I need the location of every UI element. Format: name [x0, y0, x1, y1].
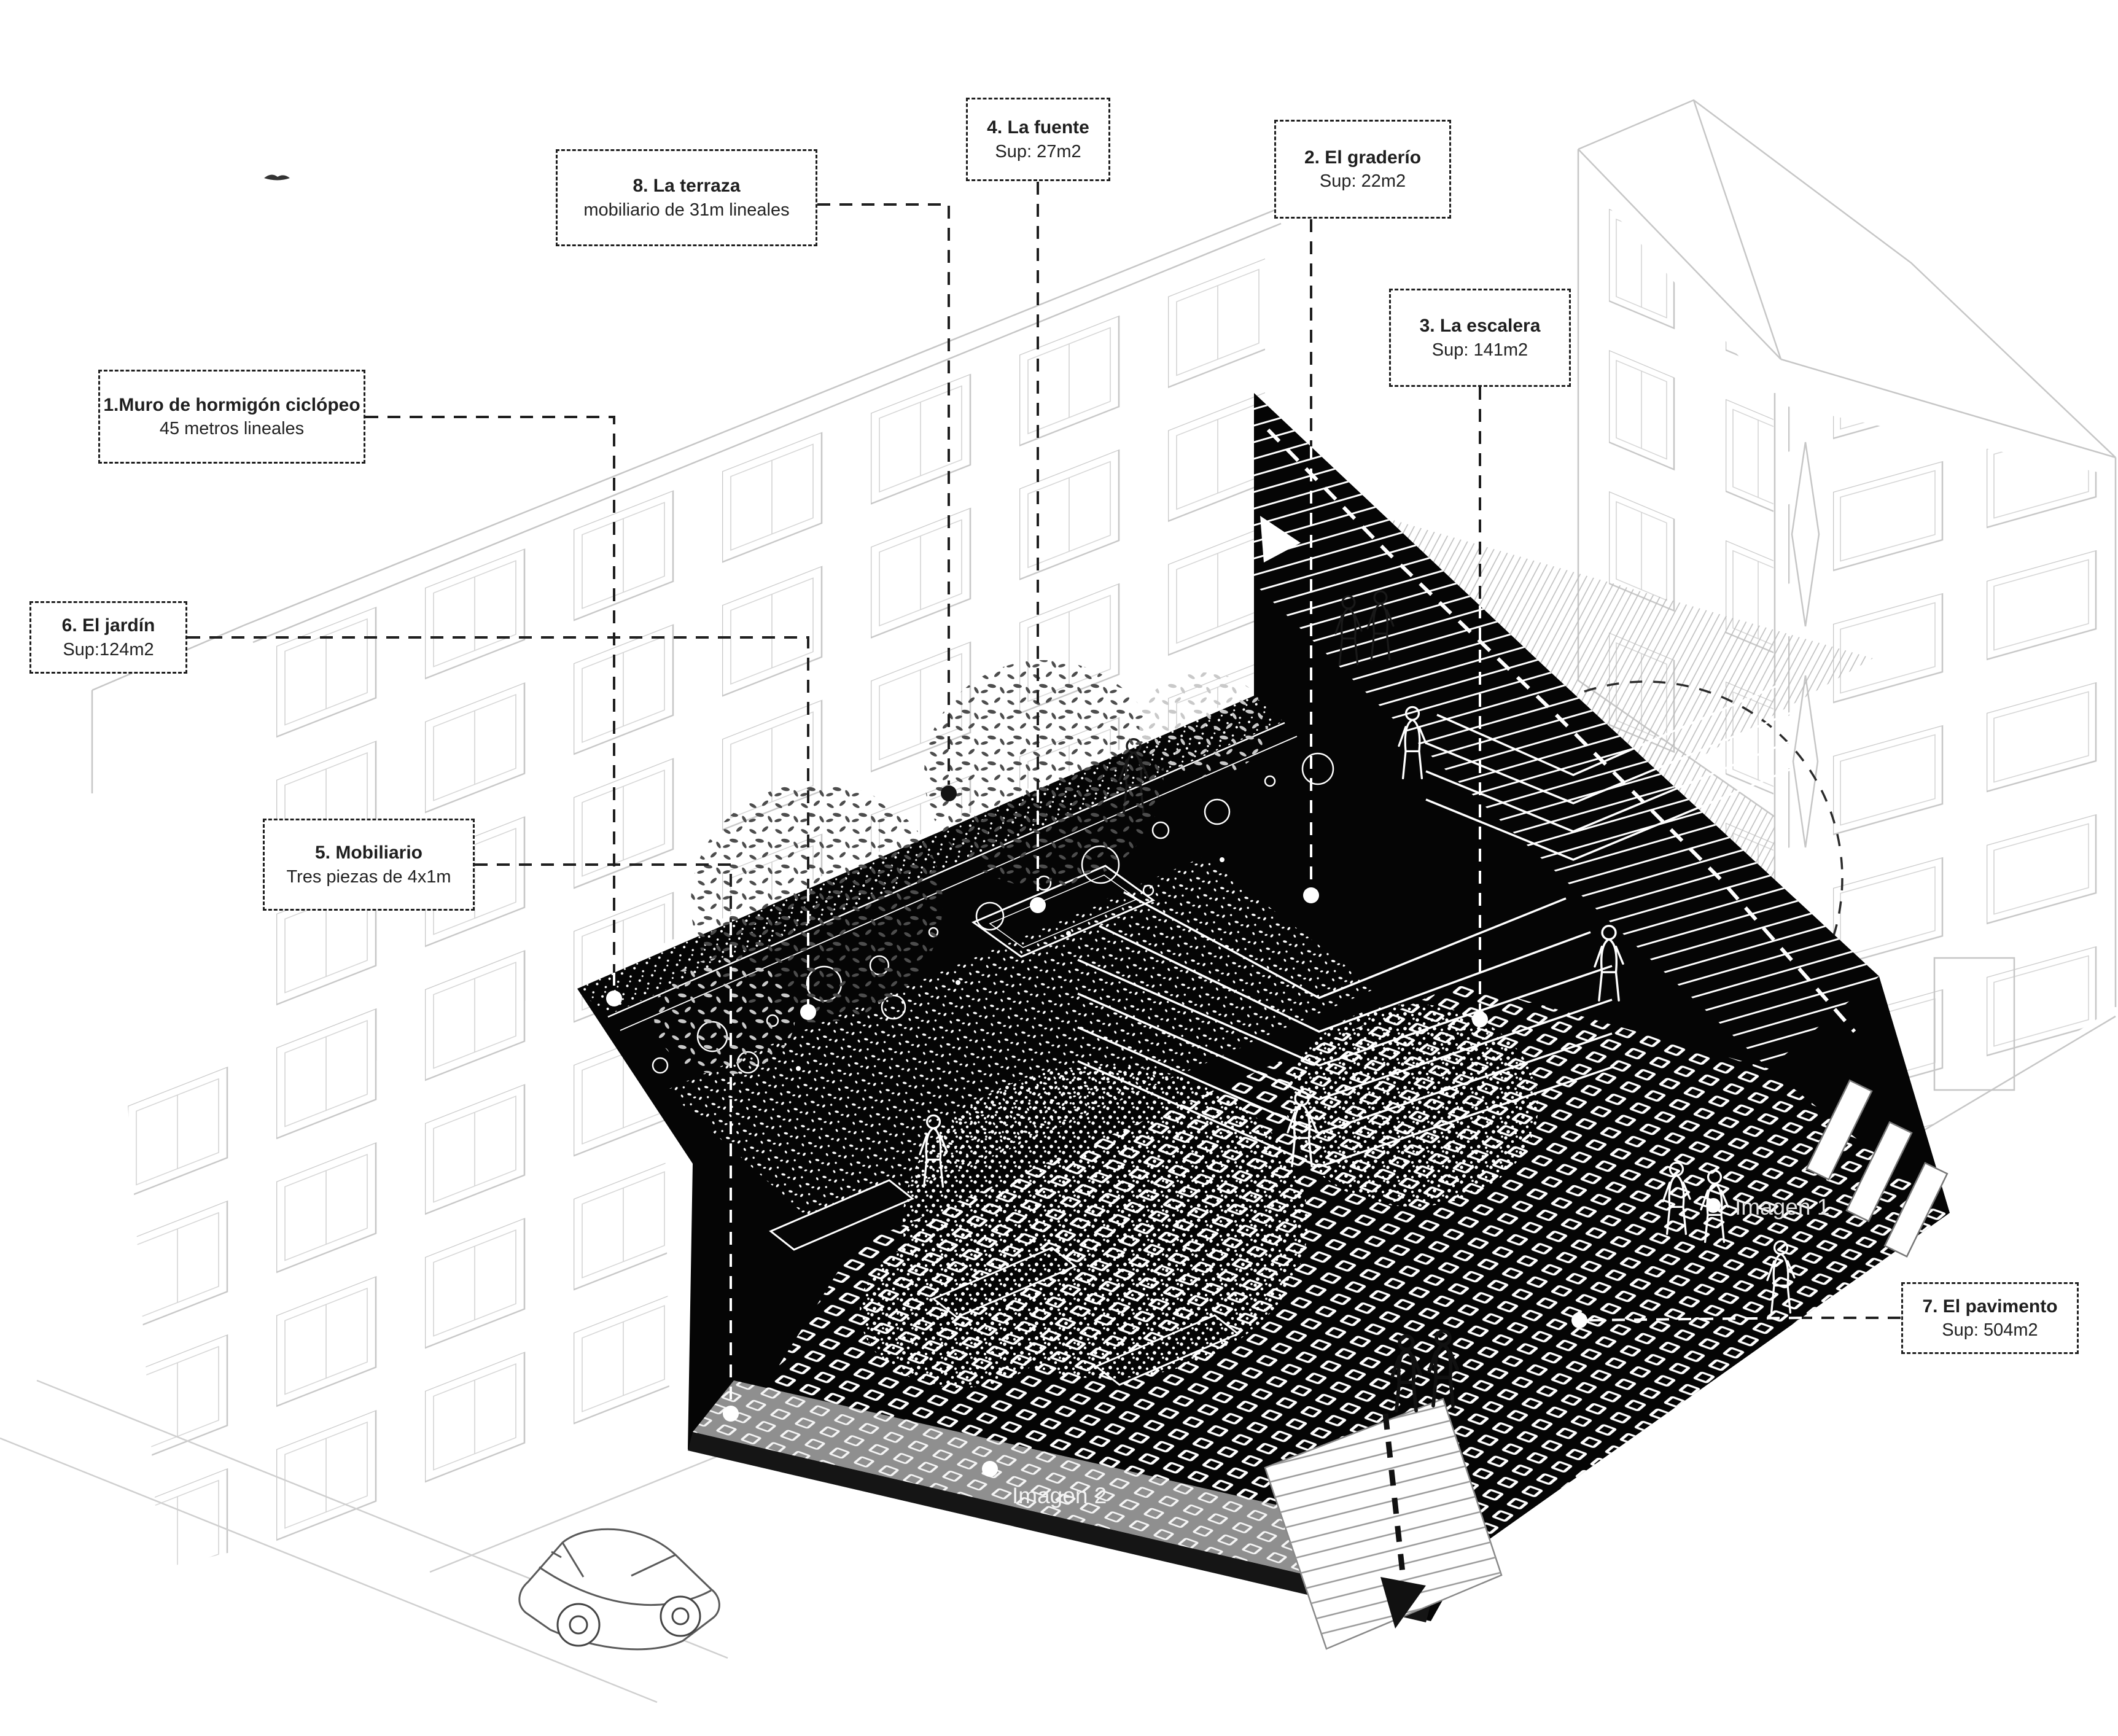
callout-graderio-subtitle: Sup: 22m2	[1320, 169, 1406, 193]
imagen-2-dot	[982, 1461, 998, 1477]
callout-fuente-subtitle: Sup: 27m2	[995, 140, 1081, 163]
bird-icon	[264, 174, 290, 180]
callout-pavimento-title: 7. El pavimento	[1922, 1294, 2057, 1319]
callout-muro: 1.Muro de hormigón ciclópeo 45 metros li…	[98, 370, 365, 464]
callout-muro-title: 1.Muro de hormigón ciclópeo	[103, 393, 360, 418]
callout-jardin: 6. El jardín Sup:124m2	[29, 601, 187, 674]
callout-escalera: 3. La escalera Sup: 141m2	[1389, 289, 1571, 387]
callout-graderio-title: 2. El graderío	[1304, 146, 1421, 170]
callout-mobiliario: 5. Mobiliario Tres piezas de 4x1m	[263, 819, 475, 911]
dot-muro	[606, 991, 622, 1006]
callout-graderio: 2. El graderío Sup: 22m2	[1274, 120, 1451, 219]
callout-fuente: 4. La fuente Sup: 27m2	[966, 98, 1110, 181]
callout-muro-subtitle: 45 metros lineales	[160, 417, 304, 440]
callout-pavimento-subtitle: Sup: 504m2	[1942, 1318, 2038, 1342]
dot-pavimento	[1571, 1312, 1587, 1328]
car	[520, 1529, 720, 1649]
dot-mobiliario	[723, 1406, 739, 1422]
dot-escalera	[1472, 1011, 1488, 1027]
callout-fuente-title: 4. La fuente	[987, 115, 1089, 140]
dot-jardin	[800, 1004, 816, 1020]
dot-fuente	[1030, 897, 1046, 913]
callout-jardin-title: 6. El jardín	[62, 613, 155, 638]
dot-terraza	[941, 785, 957, 801]
dot-graderio	[1303, 887, 1319, 903]
callout-escalera-title: 3. La escalera	[1420, 314, 1541, 338]
callout-mobiliario-subtitle: Tres piezas de 4x1m	[286, 865, 451, 889]
diagram-page: Imagen 1 Imagen 2	[0, 0, 2118, 1736]
callout-terraza-subtitle: mobiliario de 31m lineales	[583, 198, 789, 222]
callout-terraza: 8. La terraza mobiliario de 31m lineales	[556, 149, 817, 246]
callout-mobiliario-title: 5. Mobiliario	[315, 841, 422, 865]
callout-escalera-subtitle: Sup: 141m2	[1432, 338, 1528, 362]
imagen-2-label: Imagen 2	[1012, 1483, 1107, 1508]
imagen-1-label: Imagen 1	[1735, 1194, 1829, 1220]
callout-pavimento: 7. El pavimento Sup: 504m2	[1901, 1282, 2079, 1354]
callout-jardin-subtitle: Sup:124m2	[63, 638, 154, 661]
callout-terraza-title: 8. La terraza	[633, 174, 740, 198]
